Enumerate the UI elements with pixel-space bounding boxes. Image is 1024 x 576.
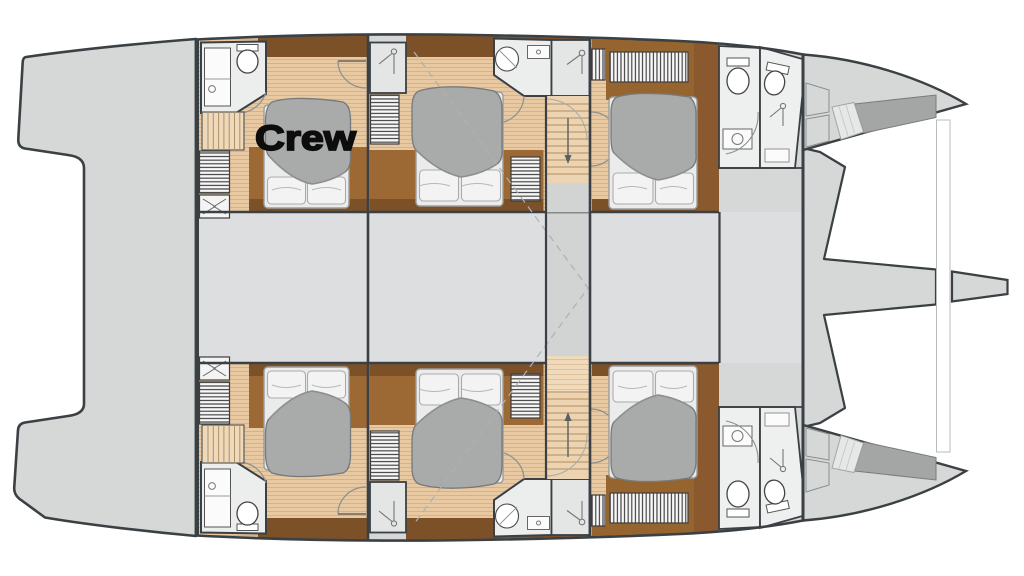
svg-text:Crew: Crew [255,119,357,158]
